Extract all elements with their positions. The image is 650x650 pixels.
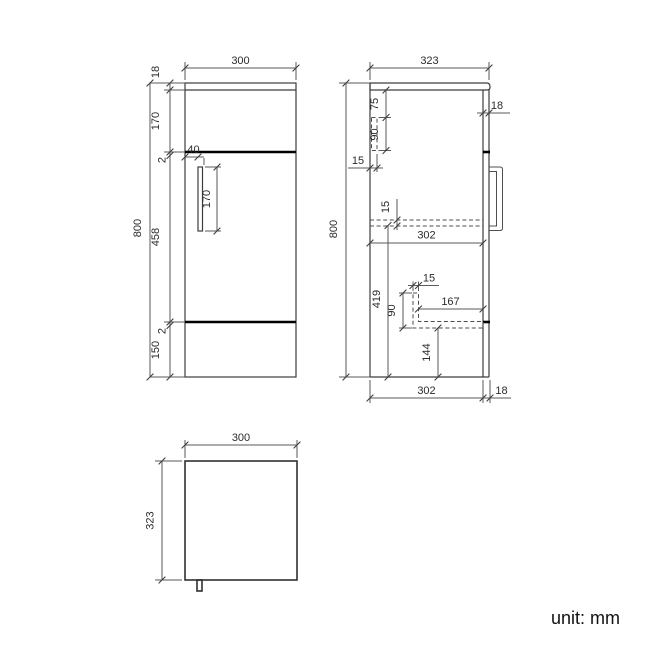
dim-label-side-height: 800 (328, 220, 340, 238)
dim-label-shelf-thickness: 15 (380, 201, 392, 213)
dim-back-rail-offset: 75 (369, 87, 391, 121)
dim-label-support-height: 90 (386, 304, 398, 316)
dim-label-drawer-height: 170 (150, 112, 162, 130)
dim-label-support-thickness: 15 (423, 273, 435, 285)
unit-label: unit: mm (551, 608, 620, 628)
dim-label-back-rail-height: 90 (369, 128, 381, 140)
worktop-profile (370, 83, 490, 90)
dim-label-gap-lower: 2 (157, 328, 169, 334)
dim-label-internal-depth: 302 (417, 230, 435, 242)
dim-side-overall-depth: 323 (367, 55, 493, 80)
dim-label-support-length: 167 (441, 296, 459, 308)
handle-profile-inner (489, 172, 497, 227)
cabinet-dimension-drawing: 300 18 170 2 458 2 150 800 (0, 0, 650, 650)
side-view: 323 800 75 90 15 (328, 55, 511, 403)
dim-label-front-height: 800 (132, 219, 144, 237)
dim-label-top-depth: 323 (145, 511, 157, 529)
dim-front-height-chain: 18 170 2 458 2 150 (150, 66, 185, 381)
handle-tab-top-view (197, 580, 202, 591)
dim-support-to-base: 144 (421, 325, 441, 381)
dim-label-top-width: 300 (232, 432, 250, 444)
top-view: 300 323 (145, 432, 301, 591)
dim-label-front-panel-thickness: 18 (491, 100, 503, 112)
top-view-outline (185, 461, 297, 580)
dim-label-base-height: 150 (150, 341, 162, 359)
dim-label-internal-depth-base: 302 (417, 385, 435, 397)
dim-front-panel-thickness: 18 (477, 100, 510, 116)
dim-label-gap-upper: 2 (157, 157, 169, 163)
dim-back-rail-height: 90 (369, 118, 391, 154)
dim-support-length: 167 (415, 296, 486, 312)
dim-back-rail-thickness: 15 (348, 154, 383, 172)
dim-label-front-width: 300 (231, 55, 249, 67)
dim-label-door-height: 458 (150, 228, 162, 246)
dim-label-support-to-base: 144 (421, 343, 433, 361)
dim-label-front-panel-thickness-base: 18 (495, 385, 507, 397)
dim-side-bottom-chain: 302 18 (367, 380, 511, 403)
dim-internal-depth-mid: 302 (367, 230, 487, 247)
dim-handle-length: 170 (201, 164, 221, 235)
dim-label-back-rail-offset: 75 (369, 98, 381, 110)
dim-label-back-rail-thickness: 15 (352, 155, 364, 167)
dim-top-overall-depth: 323 (145, 458, 183, 584)
front-view: 300 18 170 2 458 2 150 800 (132, 55, 299, 380)
dim-shelf-thickness: 15 (380, 199, 400, 230)
dim-front-overall-height: 800 (132, 80, 153, 381)
dim-support-height: 90 (386, 290, 412, 332)
dim-label-side-depth: 323 (420, 55, 438, 67)
dim-lower-cavity-height: 419 (371, 222, 391, 380)
dim-label-worktop-thickness: 18 (150, 66, 162, 78)
dim-support-thickness: 15 (408, 273, 439, 292)
dim-side-overall-height: 800 (328, 80, 370, 381)
dim-front-overall-width: 300 (182, 55, 300, 80)
dim-label-handle-length: 170 (201, 190, 213, 208)
dim-label-lower-cavity-height: 419 (371, 290, 383, 308)
technical-drawing-page: 300 18 170 2 458 2 150 800 (0, 0, 650, 650)
front-cabinet-outline (185, 83, 296, 377)
dim-top-overall-width: 300 (182, 432, 301, 458)
dim-label-handle-inset: 40 (187, 144, 199, 156)
handle-profile-outer (489, 167, 503, 231)
